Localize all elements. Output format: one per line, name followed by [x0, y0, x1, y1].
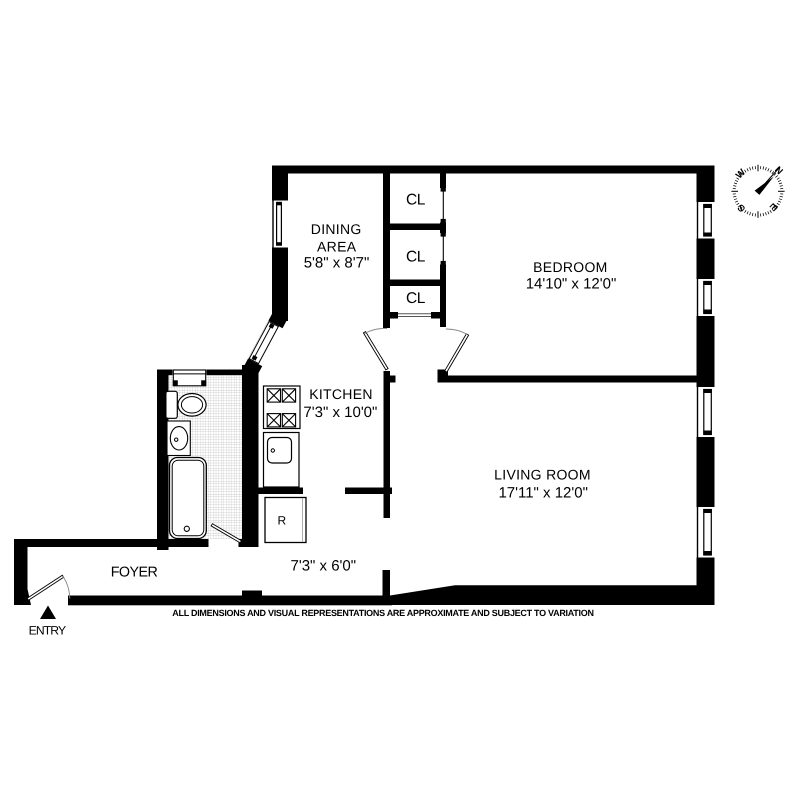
svg-text:R: R — [277, 514, 286, 528]
svg-text:CL: CL — [406, 290, 426, 307]
svg-text:ALL DIMENSIONS AND VISUAL REPR: ALL DIMENSIONS AND VISUAL REPRESENTATION… — [172, 608, 593, 618]
svg-text:LIVING ROOM: LIVING ROOM — [494, 467, 591, 483]
svg-text:BEDROOM: BEDROOM — [533, 259, 607, 275]
svg-text:AREA: AREA — [317, 239, 357, 255]
svg-text:FOYER: FOYER — [111, 565, 158, 581]
svg-text:CL: CL — [406, 192, 426, 209]
svg-text:DINING: DINING — [311, 221, 362, 237]
svg-text:7'3" x 10'0": 7'3" x 10'0" — [303, 404, 377, 421]
svg-text:KITCHEN: KITCHEN — [309, 386, 373, 402]
svg-text:5'8" x 8'7": 5'8" x 8'7" — [304, 255, 370, 272]
svg-text:14'10" x 12'0": 14'10" x 12'0" — [526, 276, 617, 293]
svg-text:7'3" x 6'0": 7'3" x 6'0" — [291, 558, 357, 575]
svg-text:CL: CL — [406, 248, 426, 265]
svg-text:17'11" x 12'0": 17'11" x 12'0" — [498, 484, 588, 501]
svg-text:ENTRY: ENTRY — [29, 624, 66, 638]
